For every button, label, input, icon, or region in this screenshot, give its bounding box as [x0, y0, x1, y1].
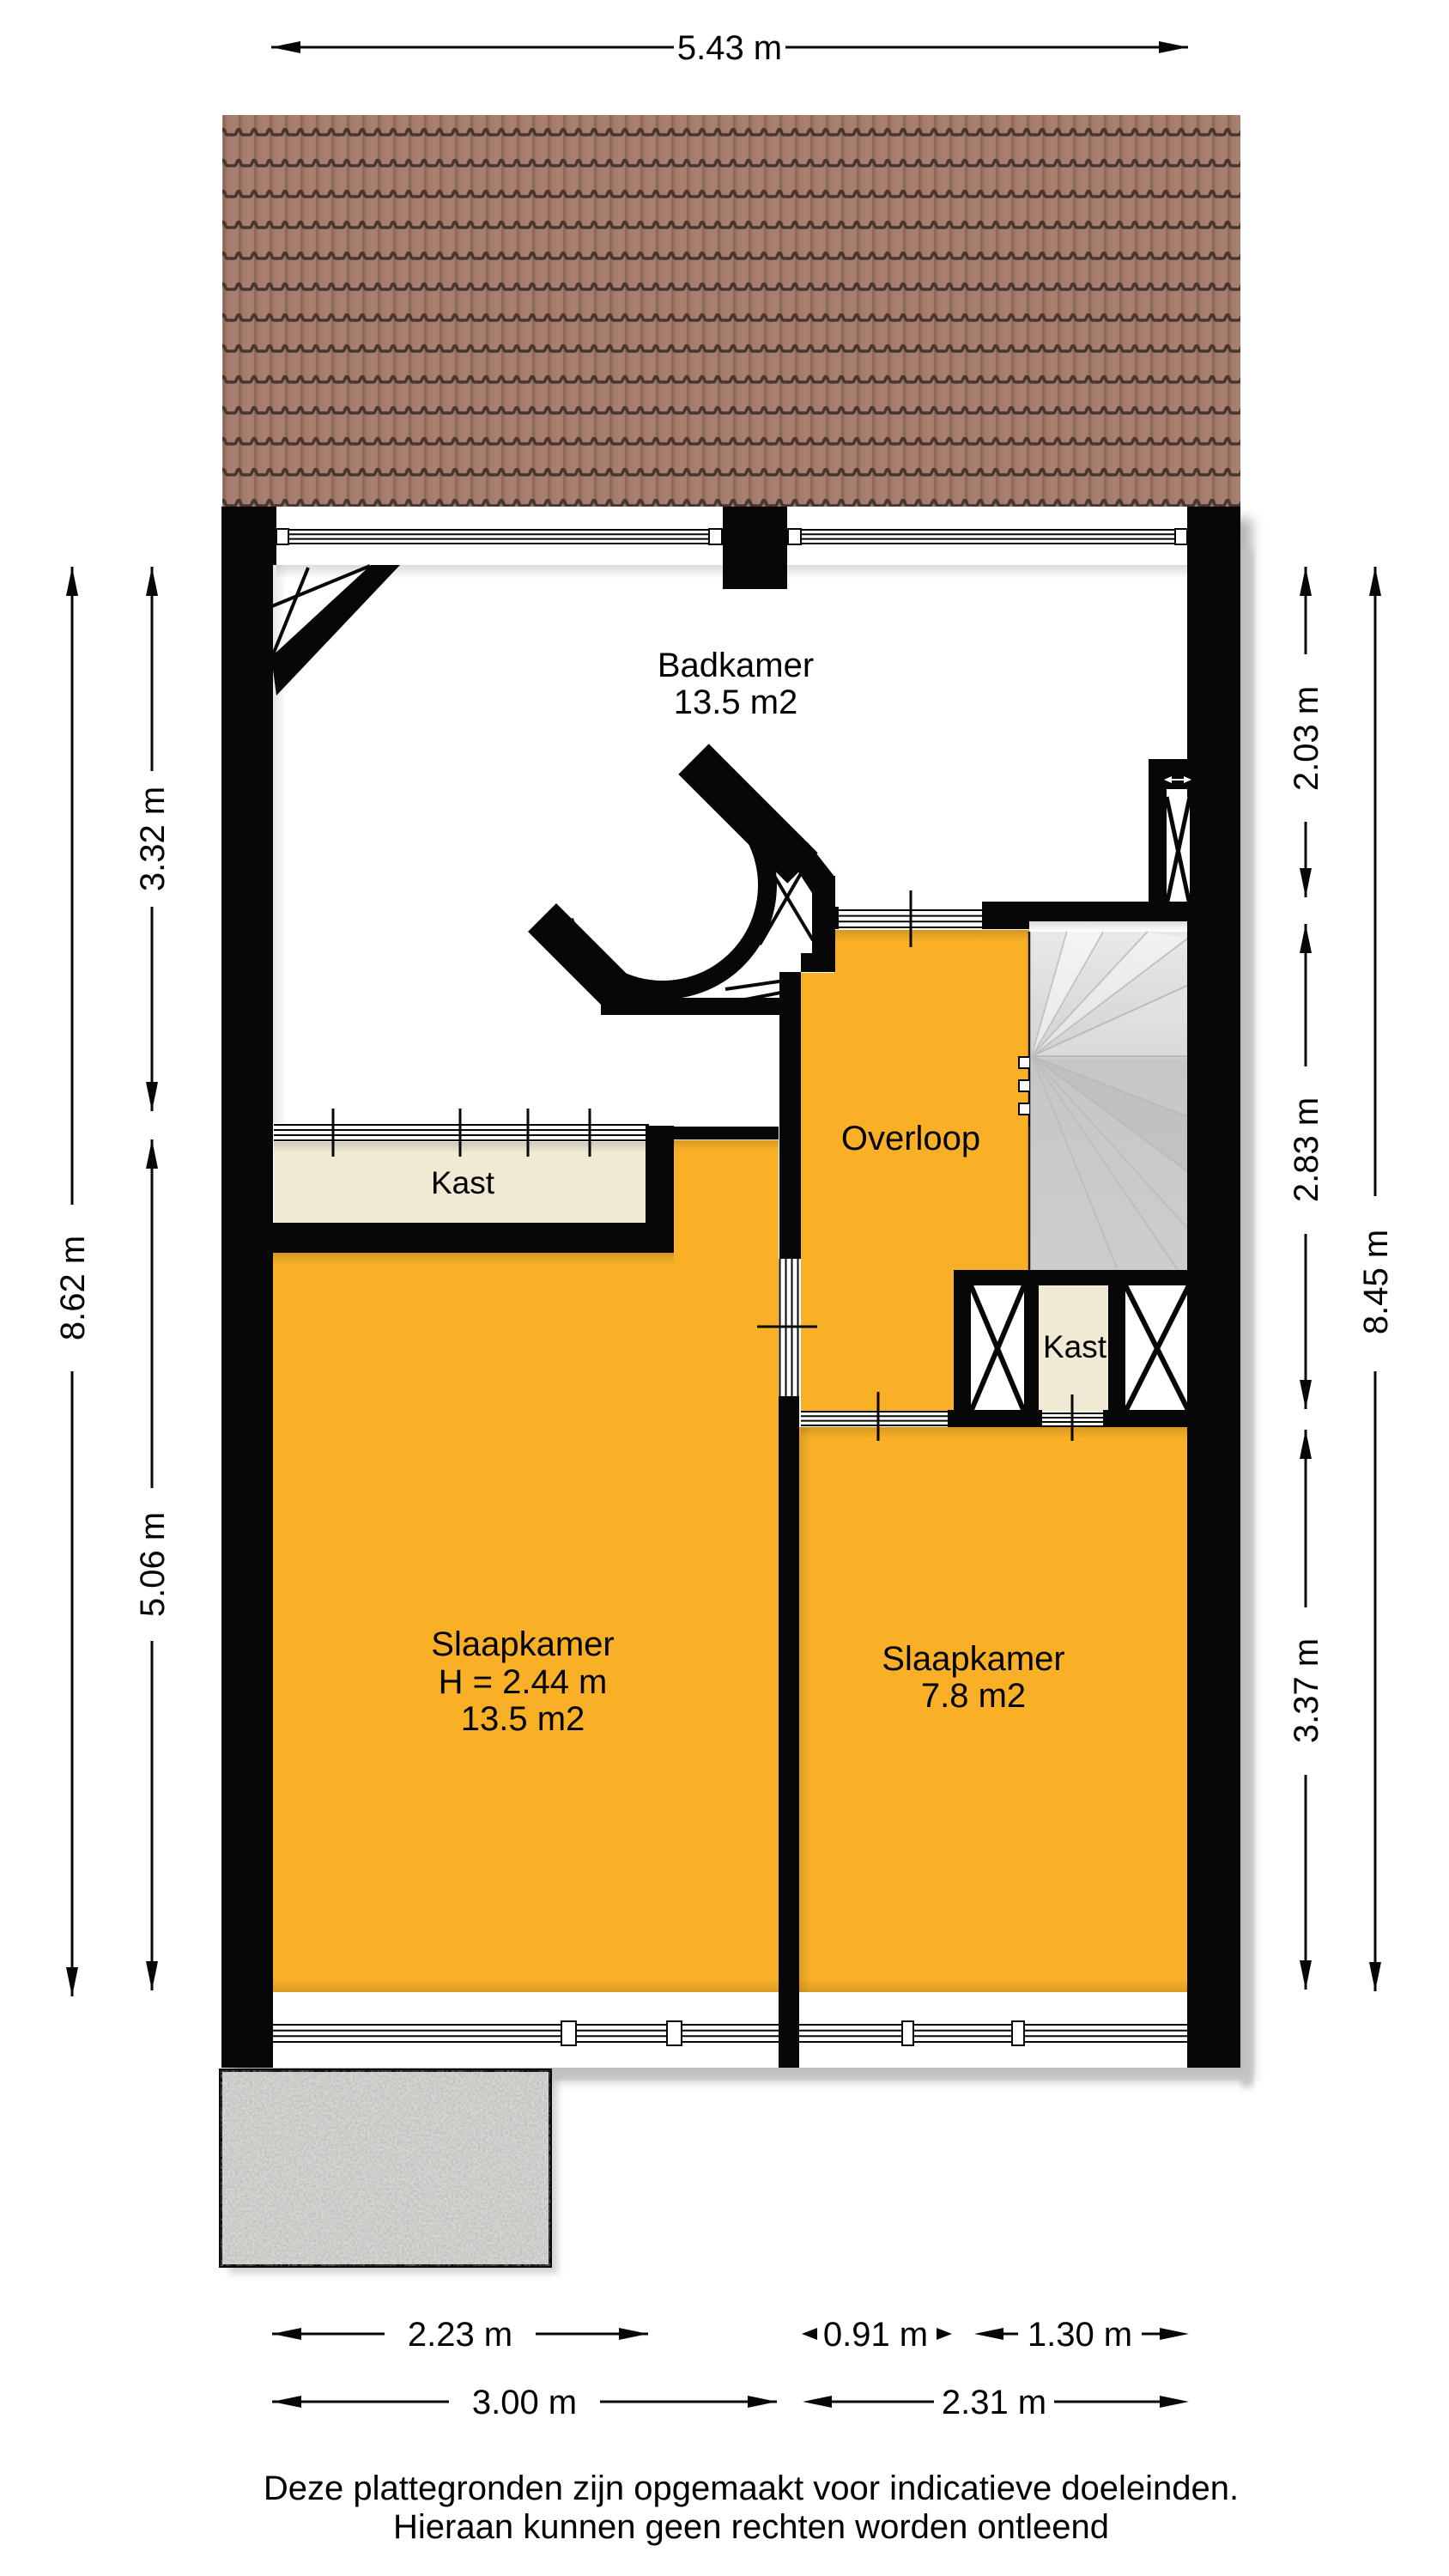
svg-text:2.23 m: 2.23 m: [408, 2316, 512, 2354]
svg-text:Slaapkamer: Slaapkamer: [882, 1640, 1064, 1678]
svg-text:3.32 m: 3.32 m: [134, 787, 172, 891]
svg-text:13.5 m2: 13.5 m2: [674, 683, 798, 721]
svg-text:2.83 m: 2.83 m: [1288, 1097, 1325, 1202]
svg-text:Badkamer: Badkamer: [658, 647, 814, 684]
svg-text:2.03 m: 2.03 m: [1288, 686, 1325, 791]
svg-text:3.37 m: 3.37 m: [1288, 1638, 1325, 1743]
svg-text:Slaapkamer: Slaapkamer: [431, 1625, 614, 1663]
svg-text:Kast: Kast: [431, 1165, 495, 1200]
svg-text:0.91 m: 0.91 m: [823, 2316, 928, 2354]
svg-text:13.5 m2: 13.5 m2: [461, 1700, 585, 1738]
svg-text:Kast: Kast: [1043, 1329, 1107, 1364]
svg-text:5.43 m: 5.43 m: [677, 29, 782, 67]
svg-text:7.8 m2: 7.8 m2: [921, 1677, 1026, 1715]
svg-text:Deze plattegronden zijn opgema: Deze plattegronden zijn opgemaakt voor i…: [264, 2470, 1239, 2507]
svg-text:5.06 m: 5.06 m: [134, 1512, 172, 1617]
svg-text:8.45 m: 8.45 m: [1357, 1230, 1395, 1334]
svg-text:1.30 m: 1.30 m: [1028, 2316, 1132, 2354]
svg-text:H = 2.44 m: H = 2.44 m: [439, 1663, 608, 1701]
svg-text:3.00 m: 3.00 m: [472, 2384, 577, 2421]
svg-text:Overloop: Overloop: [841, 1120, 980, 1157]
svg-text:2.31 m: 2.31 m: [942, 2384, 1046, 2421]
svg-text:8.62 m: 8.62 m: [54, 1236, 92, 1340]
svg-text:Hieraan kunnen geen rechten wo: Hieraan kunnen geen rechten worden ontle…: [393, 2508, 1109, 2546]
